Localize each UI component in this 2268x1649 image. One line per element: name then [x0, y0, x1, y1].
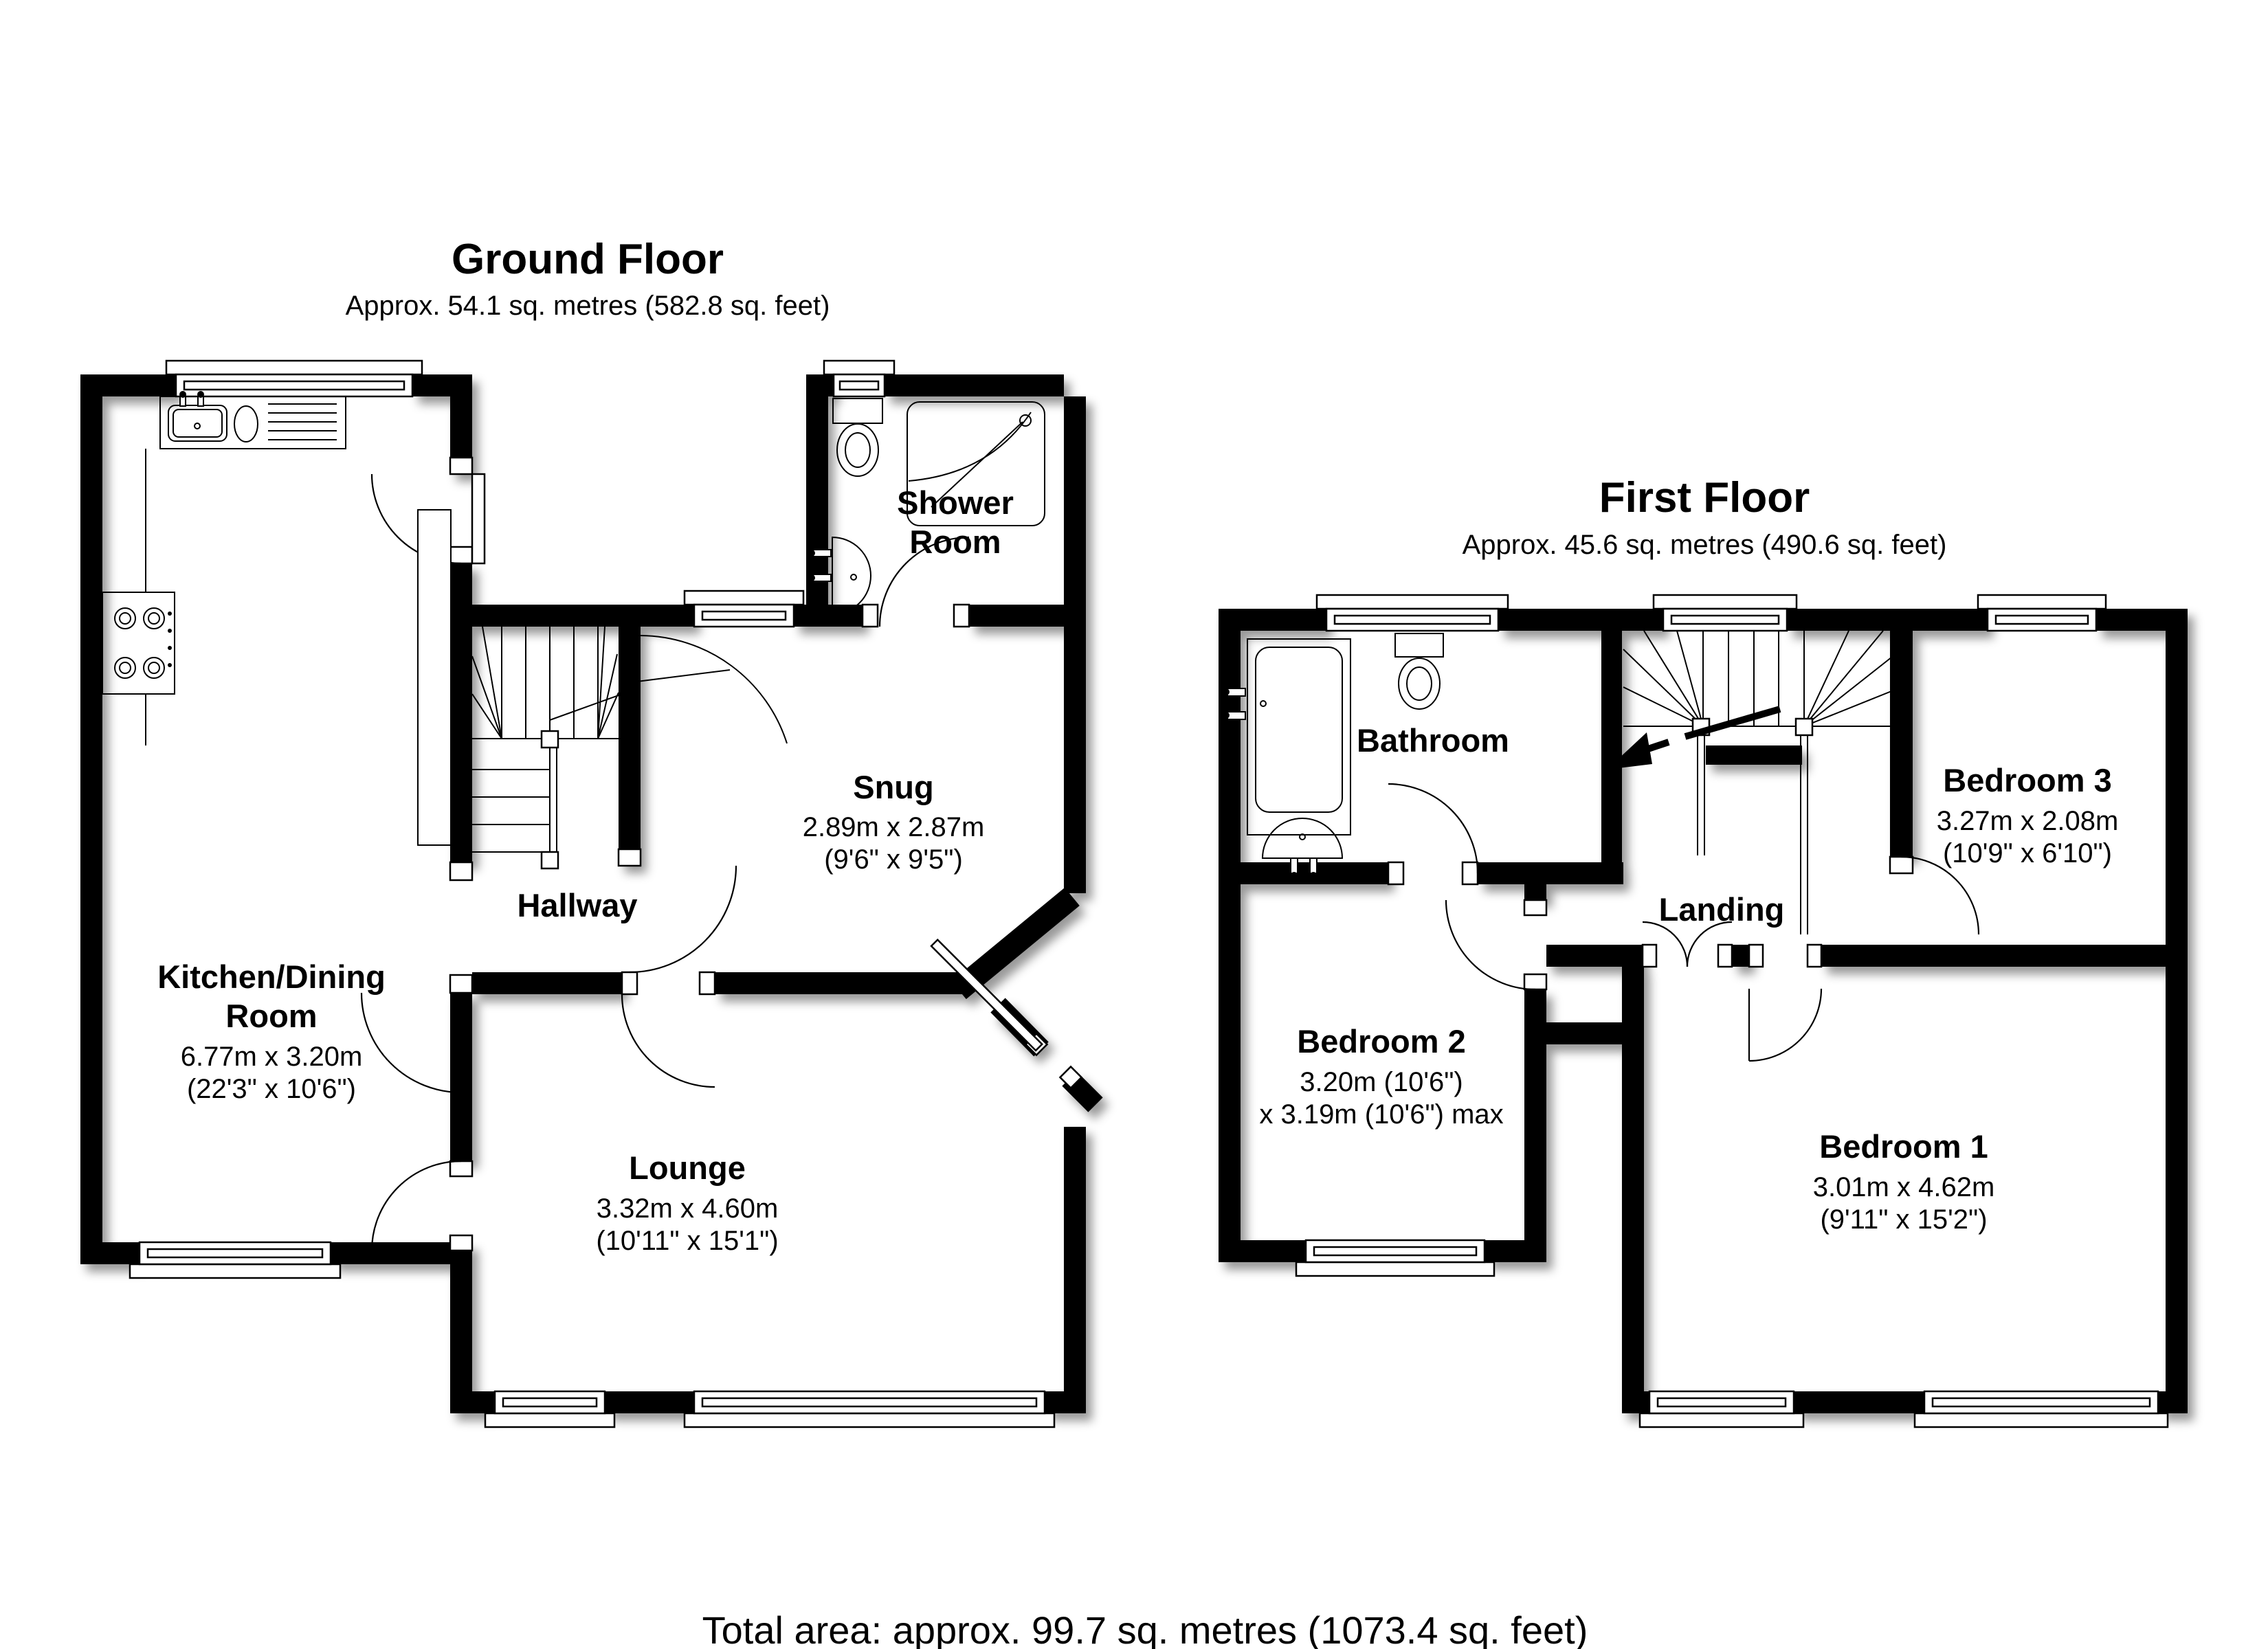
wall	[1706, 745, 1802, 765]
wall	[969, 605, 1064, 627]
bedroom2-dims-metric: 3.20m (10'6")	[1300, 1067, 1463, 1097]
door-jamb	[1718, 945, 1732, 967]
wall	[1821, 945, 2188, 967]
lounge-label: Lounge	[629, 1149, 746, 1186]
door-jamb	[1749, 945, 1763, 967]
door-jamb	[863, 605, 878, 627]
bathroom-door-arc	[1388, 784, 1478, 873]
wall	[450, 993, 472, 1161]
tap	[198, 396, 203, 406]
shower-room-window	[824, 361, 894, 396]
wall	[715, 972, 962, 994]
staircase-first	[1607, 631, 1902, 934]
door-jamb	[700, 972, 715, 994]
kitchen-dims-metric: 6.77m x 3.20m	[181, 1042, 363, 1072]
lounge-dims-metric: 3.32m x 4.60m	[597, 1193, 779, 1224]
bedroom3-dims-metric: 3.27m x 2.08m	[1937, 806, 2119, 836]
door-jamb	[954, 605, 969, 627]
tap	[1291, 858, 1298, 873]
kitchen-dims-imperial: (22'3" x 10'6")	[187, 1074, 356, 1104]
bedroom1-dims-imperial: (9'11" x 15'2")	[1820, 1204, 1987, 1235]
first-floor-subtitle: Approx. 45.6 sq. metres (490.6 sq. feet)	[1463, 530, 1947, 560]
bathroom-label: Bathroom	[1357, 722, 1509, 759]
wall	[1546, 945, 1643, 967]
door-jamb	[450, 458, 472, 474]
stairs-window	[685, 591, 803, 627]
wall	[2166, 609, 2188, 1413]
wall	[1219, 1240, 1306, 1262]
kitchen-hob	[102, 592, 175, 694]
newel-post	[542, 731, 558, 748]
stairwell-window	[1654, 595, 1797, 631]
landing-label: Landing	[1659, 891, 1785, 928]
wall	[1622, 967, 1644, 1413]
wall	[1601, 631, 1622, 862]
bedroom2-label: Bedroom 2	[1297, 1023, 1466, 1059]
lounge-window-right	[685, 1391, 1054, 1427]
wall	[450, 1250, 472, 1391]
wall	[806, 374, 828, 627]
wall	[885, 374, 1064, 396]
stair-direction-arrow-tail	[1648, 742, 1669, 749]
tap	[1310, 858, 1317, 873]
tap	[813, 550, 831, 557]
newel-post	[542, 852, 558, 868]
bedroom2-door-arc	[1446, 900, 1535, 989]
tap	[1227, 712, 1245, 719]
door-jamb	[1388, 862, 1403, 884]
door-jamb	[1463, 862, 1478, 884]
wall	[450, 605, 694, 627]
kitchen-label-line2: Room	[225, 998, 317, 1034]
porch-wall-diagonal	[959, 897, 1072, 990]
wall	[472, 972, 622, 994]
winder-curve	[641, 636, 787, 743]
wall	[450, 1391, 495, 1413]
ground-floor-title: Ground Floor	[452, 236, 724, 283]
bedroom2-window	[1296, 1240, 1494, 1276]
total-area-label: Total area: approx. 99.7 sq. metres (107…	[702, 1608, 1588, 1649]
first-floor-plan: First Floor Approx. 45.6 sq. metres (490…	[1219, 474, 2188, 1427]
ground-floor-plan: Ground Floor Approx. 54.1 sq. metres (58…	[80, 236, 1096, 1427]
kitchen-lounge-door-arc	[372, 1161, 461, 1250]
first-floor-title: First Floor	[1599, 474, 1810, 521]
door-jamb	[450, 547, 472, 563]
tap	[180, 396, 186, 406]
hallway-kitchen-door-arc	[362, 993, 461, 1092]
tap	[813, 574, 831, 581]
hallway-label: Hallway	[517, 887, 637, 923]
bathroom-window	[1317, 595, 1508, 631]
bedroom3-dims-imperial: (10'9" x 6'10")	[1943, 838, 2112, 868]
door-jamb	[1808, 945, 1821, 967]
wall	[1524, 884, 1546, 900]
wall	[2158, 1391, 2188, 1413]
lounge-window-left	[485, 1391, 614, 1427]
tap	[1227, 688, 1245, 696]
door-jamb	[450, 862, 472, 880]
lounge-door-arc	[622, 994, 715, 1087]
floorplan-canvas: Ground Floor Approx. 54.1 sq. metres (58…	[0, 0, 2268, 1649]
wall	[605, 1391, 694, 1413]
ground-floor-subtitle: Approx. 54.1 sq. metres (582.8 sq. feet)	[346, 291, 830, 321]
bedroom1-window-right	[1915, 1391, 2168, 1427]
newel-post	[1796, 719, 1812, 735]
wall	[1498, 609, 1663, 631]
wall	[1064, 396, 1086, 893]
door-jamb	[450, 1161, 472, 1176]
bedroom1-dims-metric: 3.01m x 4.62m	[1813, 1172, 1995, 1202]
snug-door-arc	[630, 866, 736, 972]
kitchen-window-bottom	[130, 1242, 340, 1278]
wall	[1890, 631, 1913, 857]
bath	[1223, 639, 1350, 835]
bathroom-toilet	[1395, 633, 1443, 709]
wall	[80, 1242, 140, 1264]
bedroom1-door-arc	[1749, 989, 1821, 1061]
wall	[1732, 945, 1749, 967]
wall	[80, 374, 102, 1264]
snug-dims-metric: 2.89m x 2.87m	[803, 812, 985, 842]
stair-cupboard	[418, 510, 451, 845]
wall	[1064, 1127, 1086, 1413]
kitchen-window-top	[166, 361, 422, 396]
door-jamb	[450, 1235, 472, 1250]
wall	[1794, 1391, 1924, 1413]
door-jamb	[1890, 857, 1913, 873]
door-jamb	[1643, 945, 1656, 967]
door-jamb	[1524, 974, 1546, 989]
bedroom3-label: Bedroom 3	[1943, 762, 2112, 798]
wall	[1219, 609, 1241, 1262]
lounge-dims-imperial: (10'11" x 15'1")	[596, 1226, 778, 1256]
bedroom1-window-left	[1640, 1391, 1803, 1427]
wall	[1787, 609, 1988, 631]
door-jamb	[622, 972, 637, 994]
shower-toilet	[833, 399, 882, 476]
shower-room-label: Shower	[897, 484, 1014, 521]
bedroom2-dims-max: x 3.19m (10'6") max	[1259, 1099, 1503, 1130]
bedroom1-label: Bedroom 1	[1819, 1128, 1988, 1165]
snug-label: Snug	[853, 769, 933, 805]
bedroom3-window	[1978, 595, 2106, 631]
kitchen-label: Kitchen/Dining	[157, 958, 386, 995]
wall	[806, 374, 834, 396]
door-jamb	[619, 849, 641, 866]
kitchen-door-leaf	[472, 474, 485, 563]
wall	[1478, 862, 1623, 884]
door-jamb	[1524, 900, 1546, 915]
door-jamb	[450, 975, 472, 993]
kitchen-sink-unit	[160, 391, 346, 449]
wall	[619, 627, 641, 866]
shower-room-label-line2: Room	[909, 524, 1001, 560]
snug-dims-imperial: (9'6" x 9'5")	[824, 844, 963, 875]
